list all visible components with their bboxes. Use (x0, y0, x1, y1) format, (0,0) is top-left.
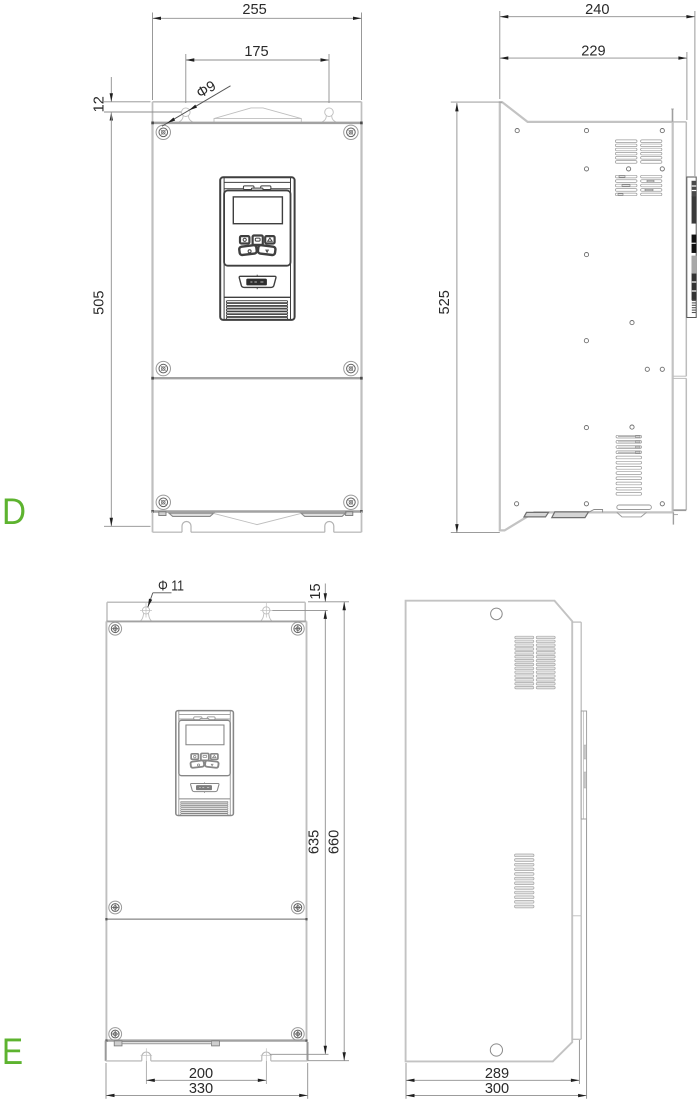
svg-text:255: 255 (242, 2, 266, 18)
svg-text:200: 200 (189, 1066, 213, 1082)
svg-text:175: 175 (244, 44, 268, 60)
svg-text:12: 12 (92, 96, 108, 112)
svg-text:D: D (2, 491, 26, 532)
svg-text:300: 300 (485, 1081, 509, 1097)
svg-text:635: 635 (307, 830, 323, 854)
svg-text:E: E (2, 1031, 23, 1072)
svg-text:330: 330 (189, 1081, 213, 1097)
svg-text:505: 505 (92, 291, 108, 315)
svg-text:15: 15 (308, 583, 324, 599)
svg-text:229: 229 (581, 44, 605, 60)
svg-text:Φ 11: Φ 11 (158, 579, 184, 595)
svg-text:240: 240 (585, 2, 609, 18)
svg-text:289: 289 (485, 1066, 509, 1082)
svg-text:660: 660 (326, 830, 342, 854)
svg-text:525: 525 (437, 290, 453, 314)
